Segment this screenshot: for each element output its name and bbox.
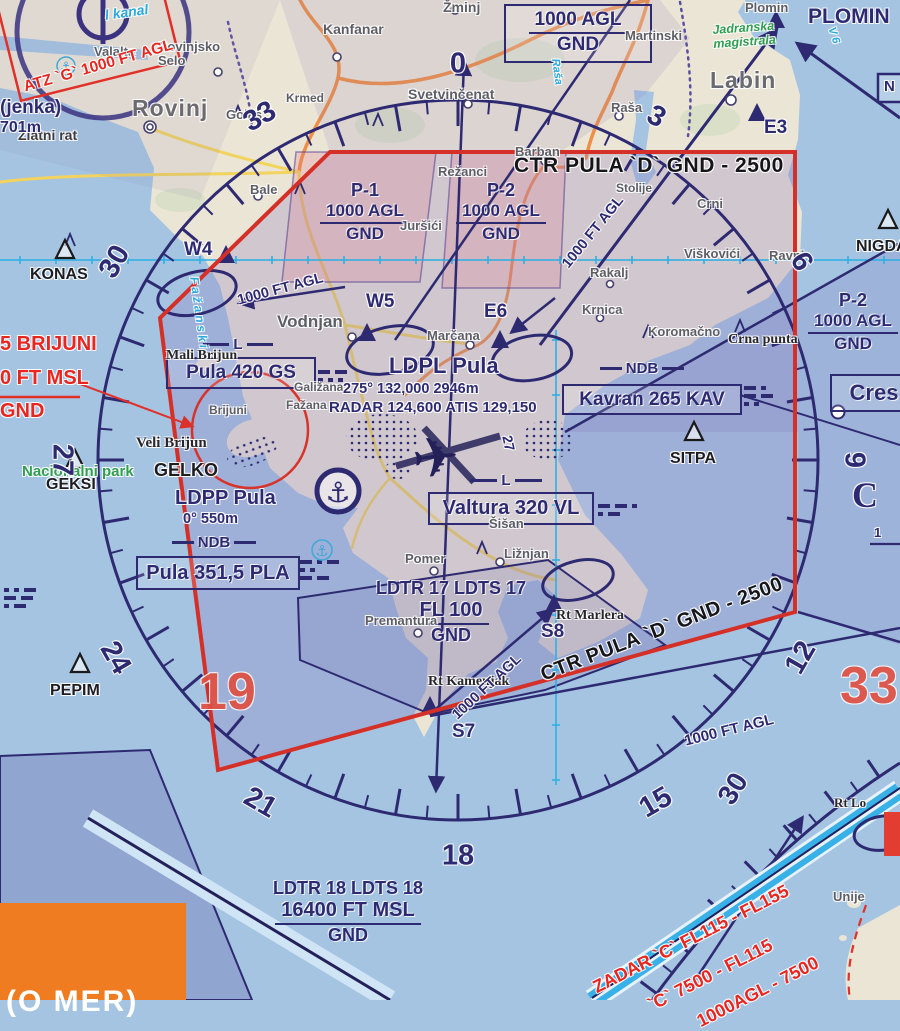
svg-text:⚓: ⚓ — [325, 476, 350, 509]
svg-text:⚓: ⚓ — [60, 60, 72, 75]
airplane-icon: ✈ — [409, 424, 462, 494]
logo-block — [0, 903, 186, 1000]
reporting-point-triangle-icon — [879, 210, 897, 228]
reporting-point-triangle-icon — [71, 654, 89, 672]
reporting-point-triangle-icon — [66, 450, 84, 468]
chart-canvas: ⚓ ⚓ ⚓ ✈ — [0, 0, 900, 1000]
vfr-chart-pula: { "colors":{"sea":"#a5c4e2","land":"#ebe… — [0, 0, 900, 1000]
waypoint-triangle-icon — [767, 10, 785, 28]
reporting-point-triangle-icon — [56, 240, 74, 258]
svg-text:⚓: ⚓ — [315, 542, 328, 560]
